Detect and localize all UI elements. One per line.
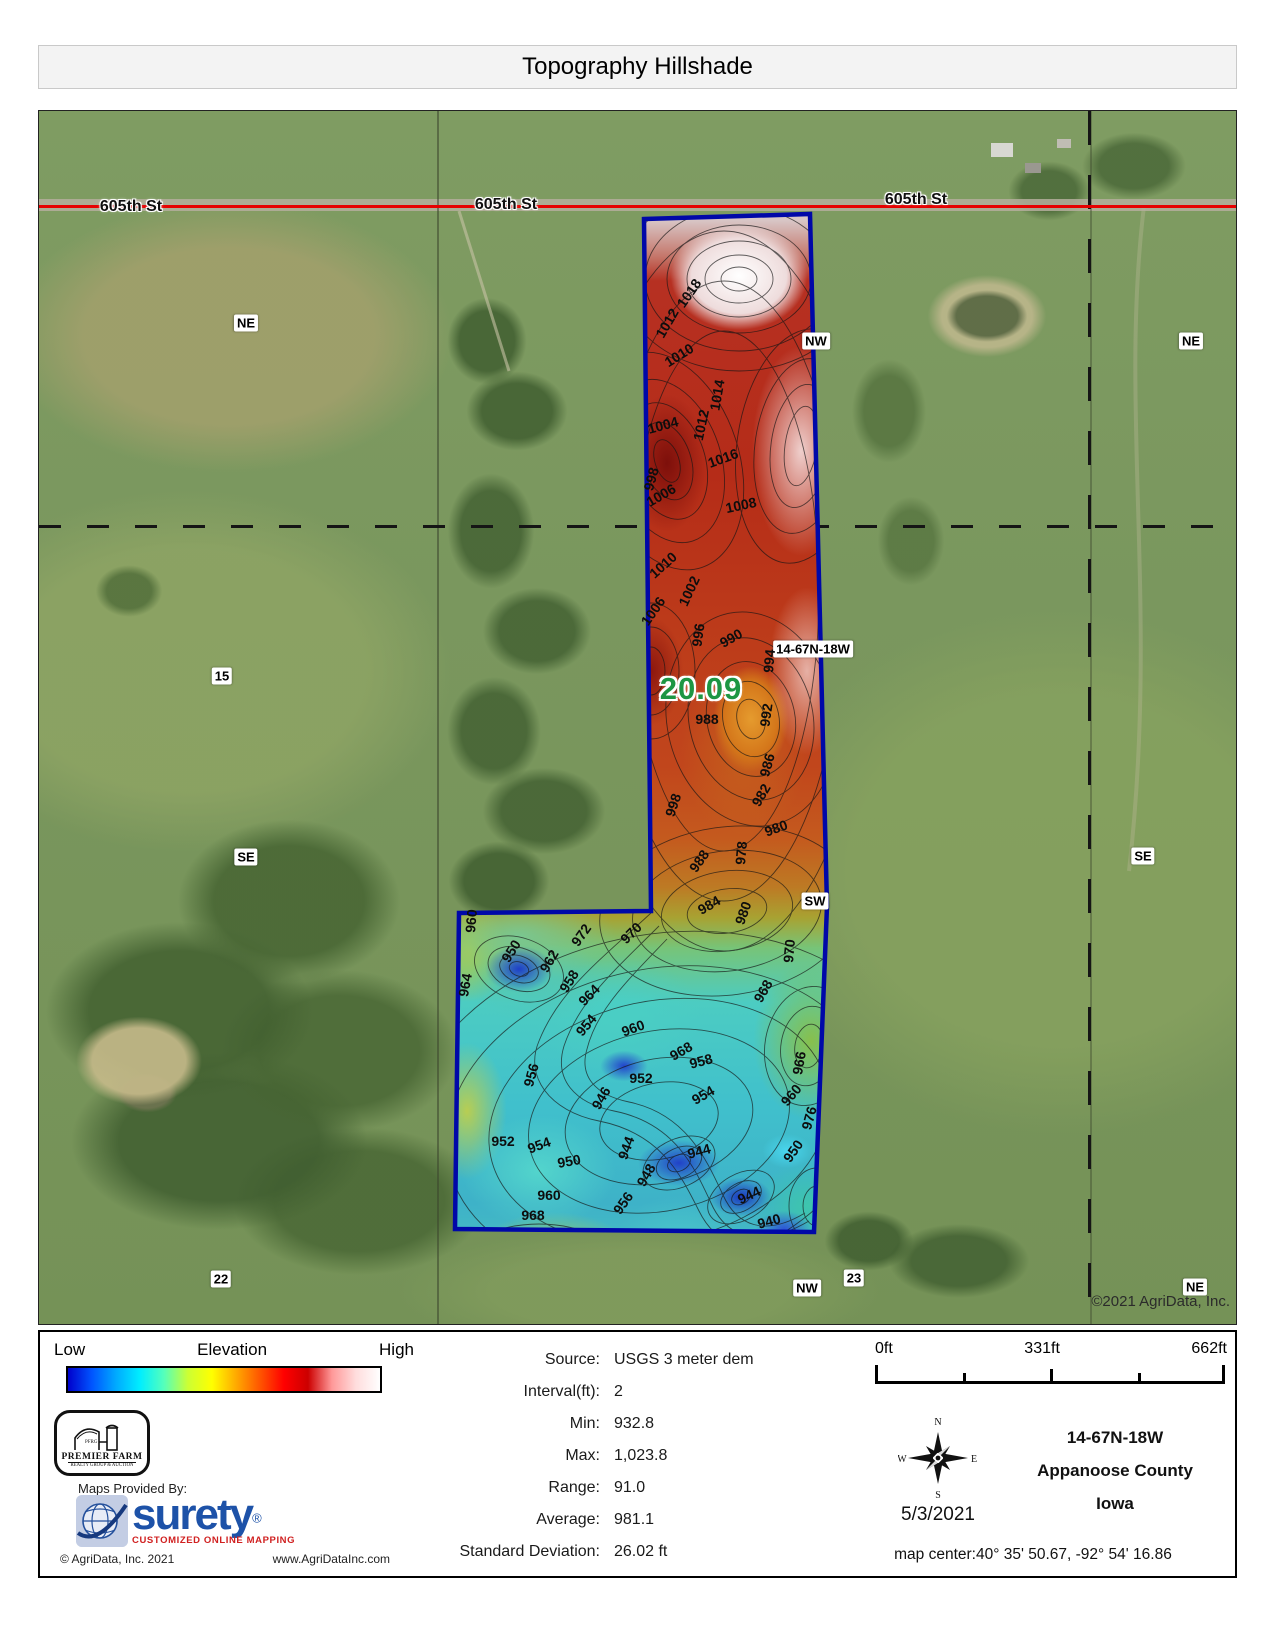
location-block: 14-67N-18W Appanoose County Iowa bbox=[995, 1428, 1235, 1527]
agridata-copyright: © AgriData, Inc. 2021 bbox=[60, 1552, 174, 1566]
svg-text:E: E bbox=[971, 1454, 977, 1465]
page: Topography Hillshade bbox=[0, 0, 1275, 1650]
stat-label: Average: bbox=[400, 1511, 614, 1529]
contour-elevation-label: 948 bbox=[633, 1161, 659, 1189]
section-label: 15 bbox=[212, 668, 232, 685]
section-label: 14-67N-18W bbox=[773, 641, 853, 658]
contour-elevation-label: 950 bbox=[498, 937, 524, 965]
stat-value: 91.0 bbox=[614, 1479, 645, 1497]
stat-row: Range:91.0 bbox=[400, 1472, 830, 1504]
contour-elevation-label: 966 bbox=[789, 1050, 809, 1076]
legend-panel: Low Elevation High PFRG PREMIER FARM REA… bbox=[38, 1330, 1237, 1578]
contour-elevation-label: 992 bbox=[756, 702, 775, 727]
state-name: Iowa bbox=[995, 1494, 1235, 1514]
elevation-scale-words: Low Elevation High bbox=[54, 1340, 414, 1360]
contour-elevation-label: 952 bbox=[491, 1133, 514, 1149]
map-date: 5/3/2021 bbox=[868, 1504, 1008, 1526]
contour-elevation-label: 980 bbox=[731, 899, 754, 926]
contour-elevation-label: 950 bbox=[780, 1137, 807, 1165]
section-label: 23 bbox=[844, 1270, 864, 1287]
contour-elevation-label: 1002 bbox=[675, 574, 703, 609]
contour-elevation-label: 944 bbox=[614, 1134, 637, 1161]
section-label: SE bbox=[1131, 848, 1154, 865]
contour-elevation-label: 968 bbox=[750, 977, 776, 1005]
section-label: NE bbox=[1179, 333, 1203, 350]
contour-elevation-label: 1010 bbox=[646, 549, 680, 582]
contour-elevation-label: 988 bbox=[695, 711, 718, 727]
stat-label: Max: bbox=[400, 1447, 614, 1465]
county-name: Appanoose County bbox=[995, 1461, 1235, 1481]
surety-logo: surety® CUSTOMIZED ONLINE MAPPING bbox=[76, 1495, 295, 1547]
contour-elevation-label: 1004 bbox=[646, 413, 680, 437]
stat-value: 26.02 ft bbox=[614, 1543, 667, 1561]
surety-wordmark: surety bbox=[132, 1490, 252, 1539]
contour-elevation-label: 972 bbox=[568, 921, 595, 949]
elevation-gradient-bar bbox=[66, 1366, 382, 1393]
contour-elevation-label: 964 bbox=[575, 981, 603, 1009]
contour-elevation-label: 996 bbox=[688, 622, 707, 647]
section-label: NE bbox=[234, 315, 258, 332]
contour-elevation-label: 980 bbox=[762, 816, 789, 839]
contour-elevation-label: 956 bbox=[610, 1189, 637, 1217]
map-canvas: 605th St605th St605th St NENWNE1514-67N-… bbox=[38, 110, 1237, 1325]
contour-elevation-label: 950 bbox=[556, 1151, 582, 1171]
contour-elevation-label: 954 bbox=[689, 1082, 717, 1108]
contour-elevation-label: 944 bbox=[735, 1183, 763, 1207]
stat-value: 2 bbox=[614, 1383, 623, 1401]
map-labels: 605th St605th St605th St NENWNE1514-67N-… bbox=[39, 111, 1236, 1324]
contour-elevation-label: 962 bbox=[536, 947, 562, 975]
contour-elevation-label: 960 bbox=[462, 909, 480, 934]
contour-elevation-label: 1014 bbox=[706, 378, 727, 411]
contour-elevation-label: 960 bbox=[537, 1187, 560, 1203]
section-label: SE bbox=[234, 849, 257, 866]
elevation-low-label: Low bbox=[54, 1340, 85, 1360]
contour-elevation-label: 954 bbox=[525, 1133, 552, 1156]
contour-elevation-label: 944 bbox=[686, 1140, 713, 1162]
contour-elevation-label: 946 bbox=[588, 1084, 614, 1112]
stat-value: 1,023.8 bbox=[614, 1447, 667, 1465]
svg-text:N: N bbox=[934, 1417, 941, 1428]
stat-row: Min:932.8 bbox=[400, 1408, 830, 1440]
contour-elevation-label: 1012 bbox=[690, 408, 712, 442]
contour-elevation-label: 960 bbox=[619, 1016, 646, 1039]
contour-elevation-label: 1018 bbox=[674, 276, 705, 311]
contour-elevation-label: 988 bbox=[686, 847, 713, 875]
premier-farm-name: PREMIER FARM bbox=[61, 1452, 142, 1462]
stat-label: Standard Deviation: bbox=[400, 1543, 614, 1561]
section-label: SW bbox=[802, 893, 829, 910]
stat-value: 932.8 bbox=[614, 1415, 654, 1433]
contour-elevation-label: 1012 bbox=[652, 306, 681, 341]
parcel-acreage-label: 20.09 bbox=[660, 671, 743, 707]
contour-elevation-label: 978 bbox=[732, 841, 750, 866]
svg-text:W: W bbox=[898, 1454, 907, 1465]
stat-label: Range: bbox=[400, 1479, 614, 1497]
svg-text:PFRG: PFRG bbox=[85, 1440, 98, 1445]
map-center-coords: map center:40° 35' 50.67, -92° 54' 16.86 bbox=[830, 1546, 1236, 1564]
stat-value: 981.1 bbox=[614, 1511, 654, 1529]
contour-elevation-label: 970 bbox=[617, 919, 645, 947]
contour-elevation-label: 994 bbox=[760, 649, 778, 674]
contour-elevation-label: 1016 bbox=[706, 445, 741, 471]
stat-row: Standard Deviation:26.02 ft bbox=[400, 1536, 830, 1568]
contour-elevation-label: 1010 bbox=[662, 340, 697, 370]
page-title: Topography Hillshade bbox=[38, 45, 1237, 89]
surety-tagline: CUSTOMIZED ONLINE MAPPING bbox=[132, 1535, 295, 1546]
contour-elevation-label: 958 bbox=[556, 967, 582, 995]
scalebar bbox=[875, 1364, 1225, 1384]
premier-farm-logo: PFRG PREMIER FARM REALTY GROUP & AUCTION bbox=[54, 1410, 150, 1476]
contour-elevation-label: 984 bbox=[695, 892, 723, 918]
stat-row: Max:1,023.8 bbox=[400, 1440, 830, 1472]
contour-elevation-label: 970 bbox=[780, 939, 798, 964]
compass-rose: N S W E bbox=[898, 1416, 978, 1500]
section-label: NW bbox=[802, 333, 830, 350]
contour-elevation-label: 968 bbox=[521, 1207, 544, 1223]
contour-elevation-label: 1008 bbox=[724, 494, 758, 516]
tract-id: 14-67N-18W bbox=[995, 1428, 1235, 1448]
contour-elevation-label: 986 bbox=[756, 752, 778, 779]
stat-value: USGS 3 meter dem bbox=[614, 1351, 754, 1369]
contour-elevation-label: 964 bbox=[455, 972, 475, 998]
registered-mark: ® bbox=[252, 1511, 262, 1526]
stat-label: Interval(ft): bbox=[400, 1383, 614, 1401]
scale-tick-label: 662ft bbox=[1191, 1340, 1227, 1358]
stat-row: Average:981.1 bbox=[400, 1504, 830, 1536]
premier-farm-subtitle: REALTY GROUP & AUCTION bbox=[68, 1462, 135, 1470]
contour-elevation-label: 1006 bbox=[638, 594, 669, 629]
road-name-label: 605th St bbox=[885, 191, 947, 209]
stat-label: Source: bbox=[400, 1351, 614, 1369]
contour-elevation-label: 940 bbox=[756, 1210, 783, 1232]
stat-row: Source:USGS 3 meter dem bbox=[400, 1344, 830, 1376]
stat-label: Min: bbox=[400, 1415, 614, 1433]
contour-elevation-label: 990 bbox=[717, 625, 745, 651]
globe-icon bbox=[76, 1495, 128, 1547]
contour-elevation-label: 952 bbox=[629, 1070, 652, 1086]
scale-tick-label: 331ft bbox=[1024, 1340, 1060, 1358]
contour-elevation-label: 982 bbox=[748, 781, 774, 809]
section-label: NW bbox=[793, 1280, 821, 1297]
svg-text:S: S bbox=[935, 1490, 941, 1500]
contour-elevation-label: 976 bbox=[798, 1105, 820, 1132]
stat-row: Interval(ft):2 bbox=[400, 1376, 830, 1408]
elevation-title: Elevation bbox=[197, 1340, 267, 1360]
contour-elevation-label: 954 bbox=[572, 1011, 599, 1039]
scalebar-labels: 0ft331ft662ft bbox=[875, 1340, 1227, 1358]
agridata-line: © AgriData, Inc. 2021 www.AgriDataInc.co… bbox=[60, 1552, 390, 1566]
map-copyright: ©2021 AgriData, Inc. bbox=[1091, 1293, 1230, 1310]
section-label: 22 bbox=[211, 1271, 231, 1288]
barn-icon: PFRG bbox=[69, 1422, 135, 1452]
contour-elevation-label: 956 bbox=[520, 1062, 542, 1089]
elevation-stats: Source:USGS 3 meter demInterval(ft):2Min… bbox=[400, 1344, 830, 1568]
scale-tick-label: 0ft bbox=[875, 1340, 893, 1358]
road-name-label: 605th St bbox=[100, 198, 162, 216]
contour-elevation-label: 960 bbox=[777, 1081, 804, 1109]
contour-elevation-label: 998 bbox=[662, 791, 684, 818]
agridata-url: www.AgriDataInc.com bbox=[273, 1552, 390, 1566]
road-name-label: 605th St bbox=[475, 196, 537, 214]
